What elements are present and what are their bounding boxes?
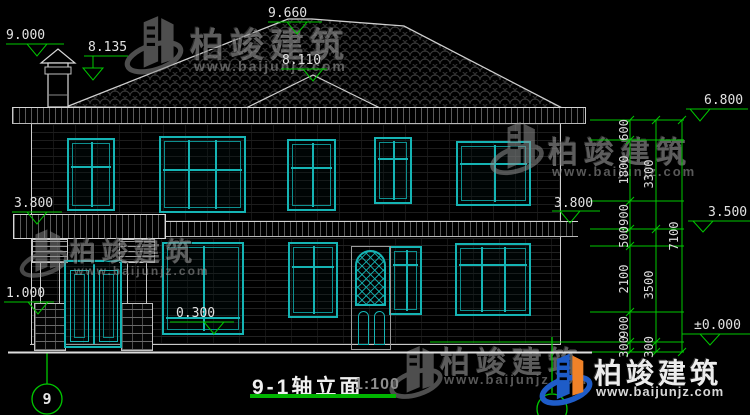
elevation-markers	[4, 22, 750, 345]
axis-bubble-label: 9	[42, 390, 51, 408]
drawing-scale-label: 1:100	[354, 376, 400, 394]
elevation-value: 8.135	[88, 40, 127, 55]
dimension-value: 900	[617, 316, 631, 338]
elevation-value: 3.800	[554, 196, 593, 211]
dimension-subtotal: 3300	[642, 160, 656, 189]
elevation-value: 3.800	[14, 196, 53, 211]
elevation-value: 6.800	[704, 93, 743, 108]
dimension-value: 600	[617, 119, 631, 141]
title-underline	[250, 394, 396, 398]
dimension-lines	[430, 116, 686, 356]
elevation-value: ±0.000	[694, 318, 741, 333]
website-watermark-text: www.baijunjz.com	[596, 384, 724, 399]
dimension-value: 900	[617, 204, 631, 226]
elevation-value: 8.110	[282, 53, 321, 68]
dimension-total: 7100	[667, 222, 681, 251]
dimension-value: 2100	[617, 265, 631, 294]
baijun-logo-icon	[538, 350, 594, 412]
dimension-subtotal: 3500	[642, 271, 656, 300]
elevation-drawing-canvas: 柏竣建筑 www.baijunjz.com 柏竣建筑 www.baijunjz.…	[0, 0, 750, 415]
elevation-value: 3.500	[708, 205, 747, 220]
elevation-value: 1.000	[6, 286, 45, 301]
dimension-value: 1800	[617, 156, 631, 185]
elevation-value: 9.000	[6, 28, 45, 43]
elevation-value: 9.660	[268, 6, 307, 21]
dimension-value: 500	[617, 226, 631, 248]
elevation-value: 0.300	[176, 306, 215, 321]
